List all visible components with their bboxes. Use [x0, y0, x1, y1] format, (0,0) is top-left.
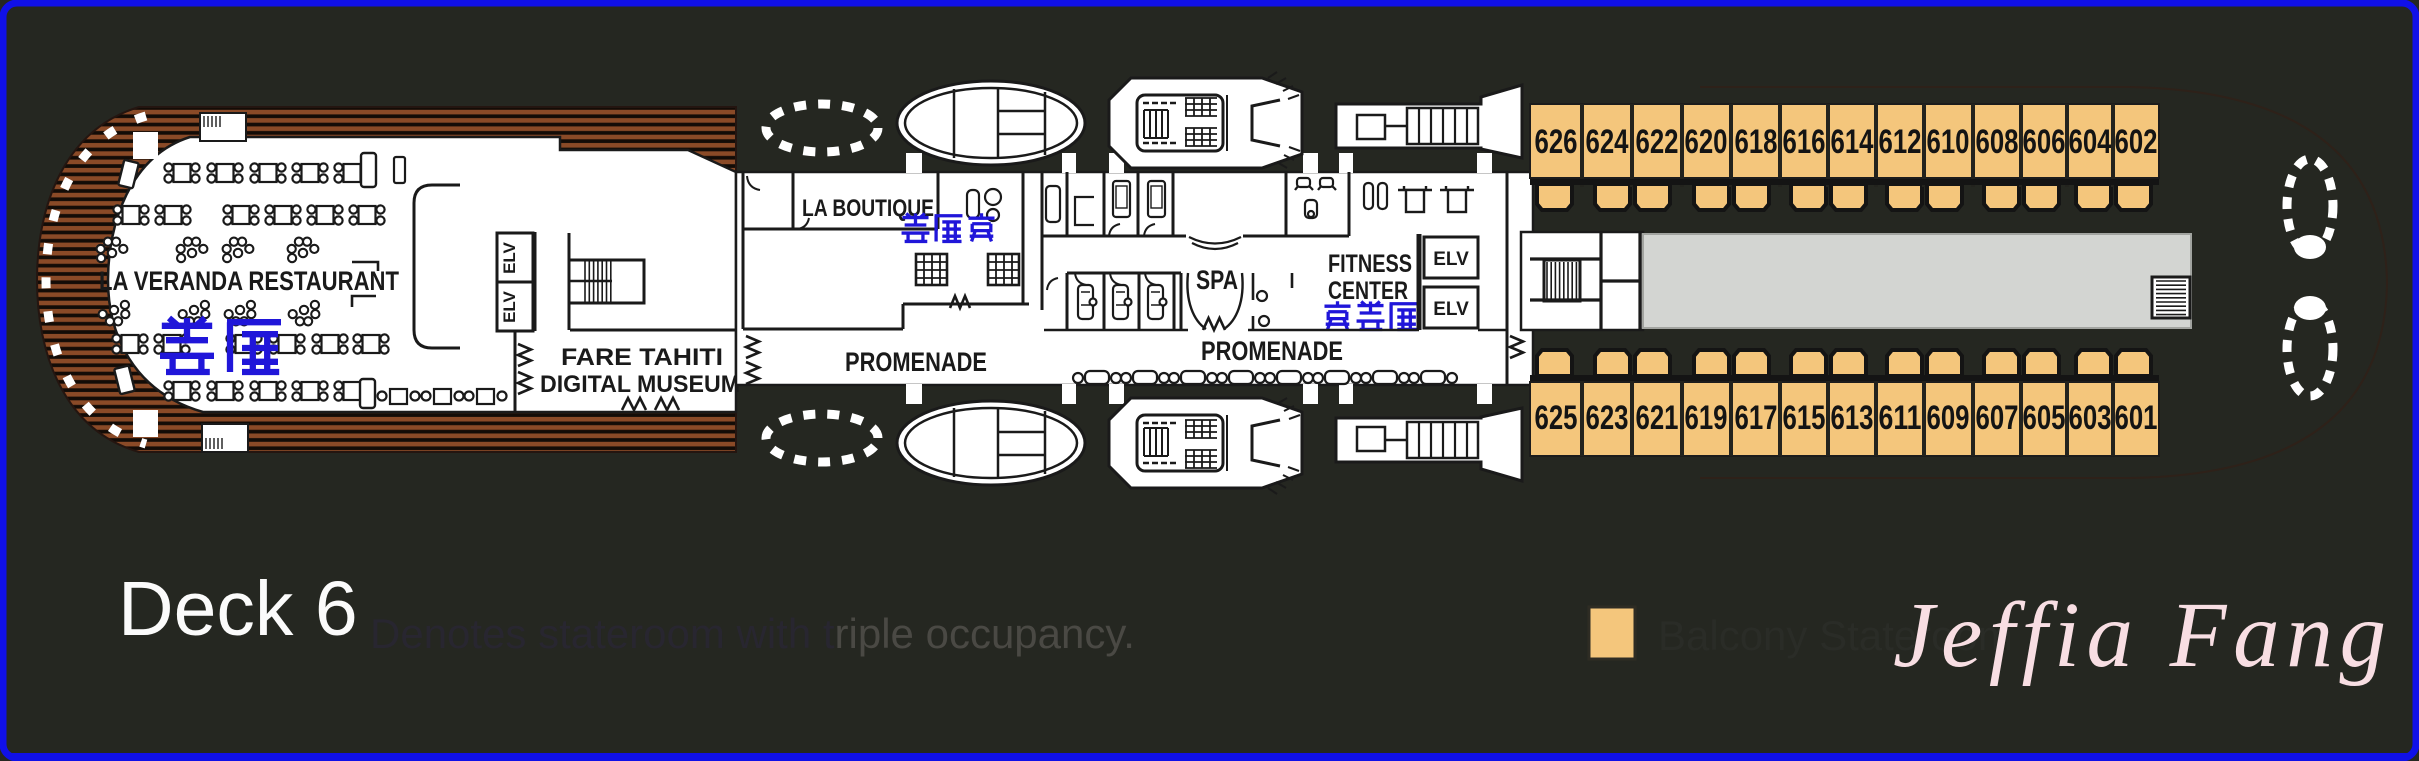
svg-text:608: 608: [1976, 123, 2019, 161]
svg-text:ELV: ELV: [500, 290, 519, 322]
svg-text:ELV: ELV: [500, 241, 519, 273]
svg-text:620: 620: [1685, 123, 1728, 161]
svg-text:610: 610: [1927, 123, 1970, 161]
svg-text:LA VERANDA RESTAURANT: LA VERANDA RESTAURANT: [99, 266, 399, 296]
svg-text:605: 605: [2023, 399, 2066, 437]
svg-text:FARE TAHITI: FARE TAHITI: [561, 344, 723, 371]
svg-text:607: 607: [1976, 399, 2019, 437]
svg-text:619: 619: [1685, 399, 1728, 437]
svg-text:601: 601: [2115, 399, 2158, 437]
svg-text:609: 609: [1927, 399, 1970, 437]
svg-text:616: 616: [1783, 123, 1826, 161]
svg-text:614: 614: [1831, 123, 1874, 161]
svg-text:617: 617: [1735, 399, 1778, 437]
svg-text:623: 623: [1586, 399, 1629, 437]
svg-text:624: 624: [1586, 123, 1629, 161]
svg-text:PROMENADE: PROMENADE: [1201, 336, 1343, 366]
svg-text:FITNESS: FITNESS: [1328, 250, 1412, 278]
svg-text:603: 603: [2069, 399, 2112, 437]
svg-text:626: 626: [1535, 123, 1578, 161]
svg-text:PROMENADE: PROMENADE: [845, 347, 987, 377]
svg-text:CENTER: CENTER: [1328, 277, 1408, 305]
svg-text:612: 612: [1879, 123, 1922, 161]
svg-text:618: 618: [1735, 123, 1778, 161]
svg-text:621: 621: [1636, 399, 1679, 437]
svg-text:ELV: ELV: [1433, 249, 1469, 270]
svg-text:602: 602: [2115, 123, 2158, 161]
svg-text:606: 606: [2023, 123, 2066, 161]
svg-text:ELV: ELV: [1433, 299, 1469, 320]
svg-text:Jeffia Fang: Jeffia Fang: [1893, 584, 2388, 687]
svg-text:SPA: SPA: [1196, 265, 1238, 295]
svg-text:625: 625: [1535, 399, 1578, 437]
svg-text:613: 613: [1831, 399, 1874, 437]
svg-text:622: 622: [1636, 123, 1679, 161]
svg-text:Denotes stateroom with triple: Denotes stateroom with triple occupancy.: [370, 610, 1135, 657]
svg-text:604: 604: [2069, 123, 2112, 161]
svg-text:Deck 6: Deck 6: [118, 566, 358, 652]
svg-text:DIGITAL MUSEUM: DIGITAL MUSEUM: [540, 371, 740, 398]
svg-text:611: 611: [1879, 399, 1922, 437]
svg-text:615: 615: [1783, 399, 1826, 437]
